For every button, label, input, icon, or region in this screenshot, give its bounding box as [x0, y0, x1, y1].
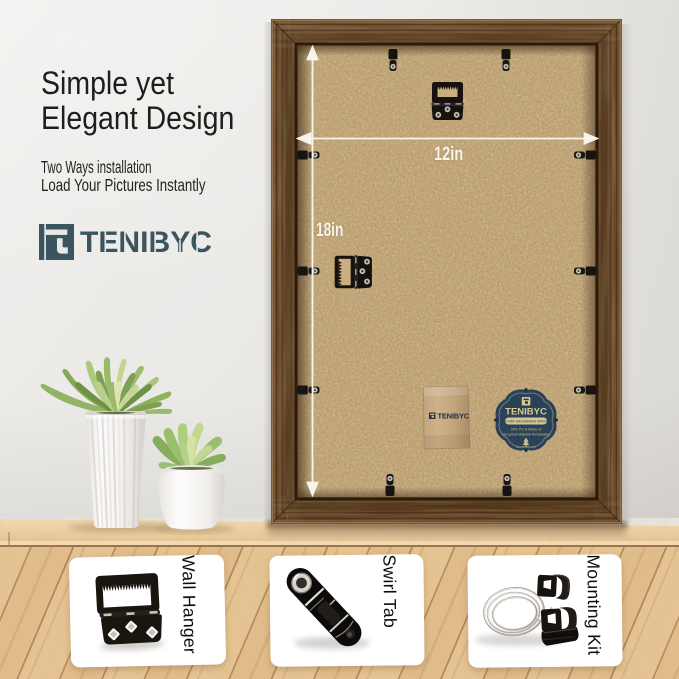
svg-text:TENIBYC: TENIBYC	[80, 226, 212, 259]
svg-text:30% PS is Made of: 30% PS is Made of	[511, 428, 542, 432]
svg-text:TENIBYC: TENIBYC	[505, 407, 547, 418]
svg-text:www.tenibyc.com: www.tenibyc.com	[516, 445, 536, 449]
svg-text:Recycled Material Renewably: Recycled Material Renewably	[502, 433, 550, 437]
svg-text:100% MDF BACKBOARD MATERIAL: 100% MDF BACKBOARD MATERIAL	[499, 420, 553, 424]
svg-text:TENIBYC: TENIBYC	[438, 412, 470, 421]
